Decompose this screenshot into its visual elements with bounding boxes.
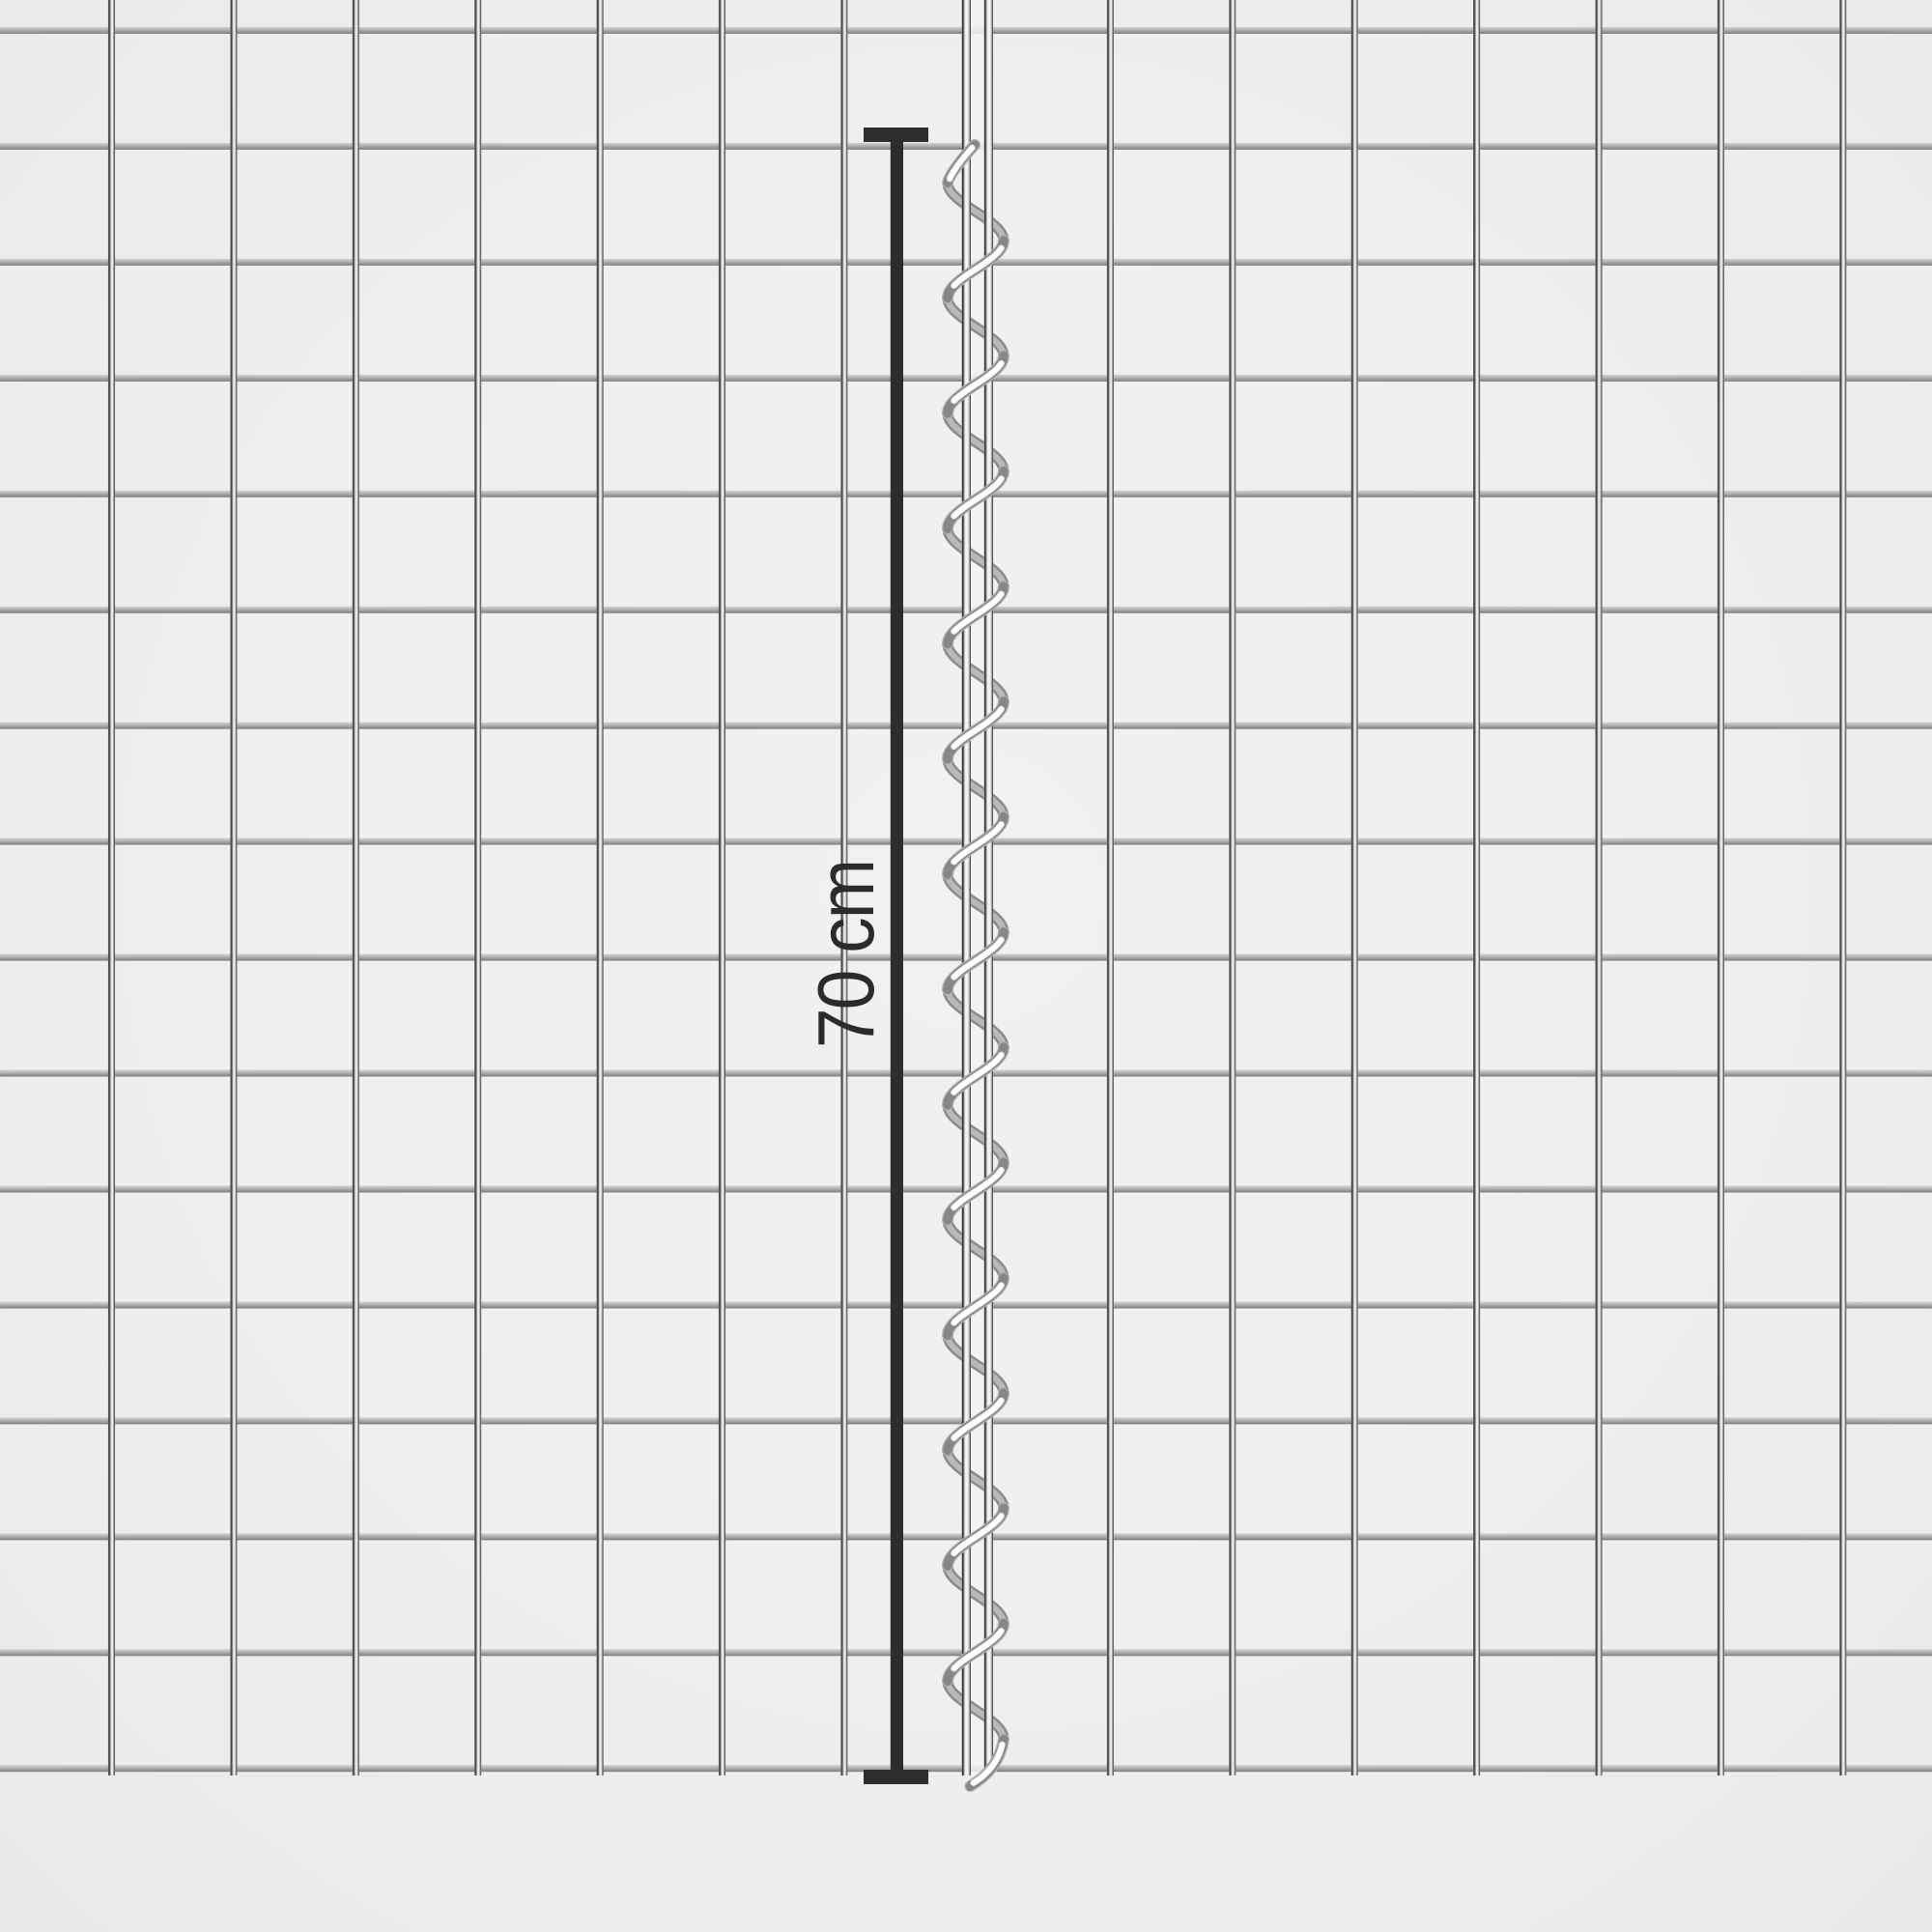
svg-text:70 cm: 70 cm <box>802 861 891 1048</box>
